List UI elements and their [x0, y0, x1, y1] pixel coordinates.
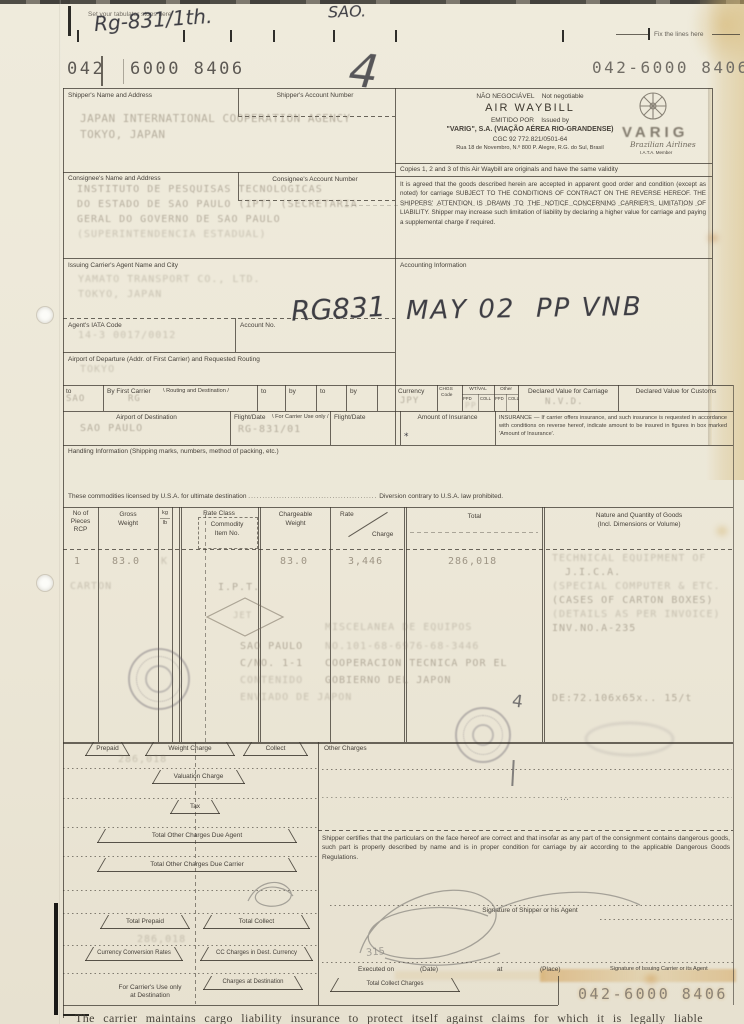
total-collect-trap: Total Collect [203, 915, 310, 929]
charges-line-7 [63, 945, 318, 946]
copies-note-topline [395, 163, 712, 164]
destination-v4 [495, 411, 496, 445]
destination-label: Airport of Destination [63, 414, 230, 422]
tab-tick [183, 30, 185, 42]
not-negotiable-line: NÃO NEGOCIÁVEL Not negotiable [420, 93, 640, 101]
consignee-label: Consignee's Name and Address [68, 175, 161, 183]
routing-v6 [377, 385, 378, 411]
consignee-line1: INSTITUTO DE PESQUISAS TECNOLOGICAS [77, 184, 323, 195]
awb-stamp-bottom-right: 042-6000 8406 [578, 985, 728, 1003]
mark-line-3b: COOPERACION TECNICA POR EL [325, 658, 508, 669]
shipper-consignee-divider [63, 172, 395, 173]
total-collect-label: Total Collect [239, 918, 274, 925]
routing-v5 [346, 385, 347, 411]
place-label: (Place) [540, 966, 561, 974]
other-charges-line-1 [322, 769, 732, 770]
agent-band-topline [63, 258, 712, 259]
carrier-use-label: \ For Carrier Use only / [272, 414, 329, 421]
dv-carriage-label: Declared Value for Carriage [520, 388, 616, 396]
routing-to2-label: to [261, 388, 266, 396]
flight-date-label: Flight/Date [234, 414, 265, 422]
handwritten-accounting: MAY 02 PP VNB [406, 292, 643, 326]
routing-v4 [316, 385, 317, 411]
awb-stamp-top-right: 042-6000 8406 [592, 58, 744, 77]
routing-v3 [285, 385, 286, 411]
iata-account-divider [235, 318, 236, 352]
insurance-note: INSURANCE — If carrier offers insurance,… [499, 414, 727, 438]
handling-topline [63, 445, 733, 446]
agent-name-line2: TOKYO, JAPAN [78, 289, 162, 300]
carrier-use-text: For Carrier Use only [275, 414, 325, 420]
th-gross-1: Gross [98, 511, 158, 519]
row-pieces: 1 [74, 556, 81, 567]
th-chargeable-1: Chargeable [261, 511, 330, 519]
stain-dot-1 [706, 232, 720, 244]
left-margin-crease [59, 0, 61, 1024]
accounting-label: Accounting Information [400, 262, 466, 270]
th-pieces-2: Pieces [63, 518, 98, 526]
destination-v2 [330, 411, 331, 445]
mark-carton: CARTON [70, 581, 112, 592]
form-right-border-lower [733, 385, 734, 1005]
due-agent-trap: Total Other Charges Due Agent [97, 829, 297, 843]
collect-label: Collect [266, 745, 286, 752]
total-prepaid-label: Total Prepaid [126, 918, 164, 925]
th-commodity-2: Item No. [198, 530, 256, 538]
consignee-line3: GERAL DO GOVERNO DE SAO PAULO [77, 214, 281, 225]
shipper-name-line1: JAPAN INTERNATIONAL COOPERATION AGENCY [80, 112, 351, 125]
charges-right-divider [318, 742, 319, 1005]
charges-bottomline [63, 1005, 558, 1006]
routing-by2-label: by [289, 388, 296, 396]
row-chargeable-weight: 83.0 [280, 556, 308, 567]
charges-line-8 [63, 973, 318, 974]
total-collect-charges-label: Total Collect Charges [366, 981, 423, 987]
routing-v1 [103, 385, 104, 411]
form-left-border [63, 88, 64, 1018]
charges-line-3 [63, 827, 318, 828]
destination-v1 [230, 411, 231, 445]
pen-stroke [511, 760, 514, 786]
wtval-coll-label: COLL [480, 396, 491, 401]
mark-line-3a: C/NO. 1-1 [240, 658, 303, 669]
currency-value: JPY [400, 396, 419, 406]
row-gross-weight: 83.0 [112, 556, 140, 567]
pen-mark-insurance: * [404, 432, 409, 442]
air-waybill-title: AIR WAYBILL [420, 102, 640, 115]
agent-label: Issuing Carrier's Agent Name and City [68, 262, 178, 270]
valuation-label: Valuation Charge [174, 773, 224, 780]
routing-v2 [257, 385, 258, 411]
due-carrier-trap: Total Other Charges Due Carrier [97, 858, 297, 872]
varig-brand-script: Brazilian Airlines [630, 140, 696, 149]
charges-line-6 [63, 913, 318, 914]
departure-row-topline [63, 352, 395, 353]
varig-company-line: "VARIG", S.A. (VIAÇÃO AÉREA RIO-GRANDENS… [410, 126, 650, 134]
top-left-mark [68, 6, 71, 36]
charges-line-1 [63, 768, 318, 769]
tab-tick [230, 30, 232, 42]
flight-date2-label: Flight/Date [334, 414, 365, 422]
prepaid-label: Prepaid [96, 745, 118, 752]
carrier-sig-label: Signature of Issuing Carrier or its Agen… [610, 966, 735, 973]
mark-line-5: ENVIADO DE JAPON [240, 692, 352, 703]
other-charges-label: Other Charges [324, 745, 367, 753]
th-pieces-1: No of [63, 510, 98, 518]
varig-address: Rua 18 de Novembro, N.º 800 P. Alegre, R… [410, 145, 650, 152]
weight-charge-value: 286,018 [118, 754, 167, 765]
goods-line-6: INV.NO.A-235 [552, 623, 636, 634]
date-label: (Date) [420, 966, 438, 974]
shipper-name-line2: TOKYO, JAPAN [80, 128, 165, 141]
pencil-note: 315 [366, 946, 386, 959]
air-waybill-scan: Set your tabulator stops here Rg-831/1th… [0, 0, 744, 1024]
charges-line-2 [63, 798, 318, 799]
handwritten-reference: Rg-831/1th. [93, 4, 213, 36]
destination-value: SAO PAULO [80, 423, 143, 434]
wtval-split [478, 394, 479, 411]
iata-row-topline [63, 318, 395, 319]
mark-line-4a: CONTENIDO [240, 675, 303, 686]
conversion-trap: Currency Conversion Rates [85, 947, 183, 961]
table-v-pieces [98, 507, 99, 742]
goods-dims: DE:72.106x65x.. 15/t [552, 693, 692, 704]
chgs-code-label: Code [441, 393, 452, 399]
other-split [506, 394, 507, 411]
th-nature-2: (Incl. Dimensions or Volume) [545, 521, 733, 529]
table-topline [63, 507, 733, 508]
certification-topline [318, 830, 733, 831]
consignee-line2: DO ESTADO DE SAO PAULO (IPT) (SECRETARIA [77, 199, 358, 210]
table-v-nature [542, 507, 545, 742]
due-agent-label: Total Other Charges Due Agent [152, 832, 242, 839]
not-negotiable-label: Not negotiable [542, 93, 584, 100]
due-carrier-label: Total Other Charges Due Carrier [150, 861, 244, 868]
tax-trap: Tax [170, 800, 220, 814]
handwritten-four: 4 [346, 43, 381, 100]
th-commodity-1: Commodity [198, 521, 256, 529]
awb-prefix: 042 [67, 59, 105, 79]
handwritten-sao: SAO. [328, 1, 367, 21]
th-kg-lb-line [160, 518, 170, 519]
center-divider [395, 88, 396, 445]
nao-negociavel-label: NÃO NEGOCIÁVEL [476, 93, 534, 100]
executed-overline [322, 962, 733, 963]
dv-customs-label: Declared Value for Customs [620, 388, 732, 396]
charges-line-4 [63, 856, 318, 857]
tax-label: Tax [190, 803, 200, 810]
mark-line-1: MISCELANEA DE EQUIPOS [325, 622, 472, 633]
total-header-dash [410, 532, 538, 533]
total-prepaid-trap: Total Prepaid [100, 915, 190, 929]
mark-line-4b: GOBIERNO DEL JAPON [325, 675, 451, 686]
varig-cgc: CGC 92 772.821/0501-64 [420, 136, 640, 144]
collect-trap: Collect [243, 742, 308, 756]
pencil-scribble-small [243, 876, 303, 912]
wtval-value: PP [465, 401, 477, 410]
iata-member-label: I.A.T.A. Member [640, 150, 672, 155]
th-rate: Rate [340, 511, 354, 519]
routing-to3-label: to [320, 388, 325, 396]
other-label: Other [494, 387, 518, 393]
th-lb: lb [158, 520, 172, 527]
handwritten-mark: 4 [511, 691, 525, 712]
flight-date-value: RG-831/01 [238, 424, 301, 435]
commodities-dots: ........................................… [248, 493, 377, 500]
routing-to-value: SAO [66, 394, 85, 404]
dv-carriage-value: N.V.D. [545, 397, 584, 407]
charges-dest-label: Charges at Destination [222, 979, 283, 985]
goods-line-5: (DETAILS AS PER INVOICE) [552, 609, 721, 620]
consignee-line4: (SUPERINTENDENCIA ESTADUAL) [77, 229, 267, 240]
other-ppd-label: PPD [495, 396, 504, 401]
goods-line-1: TECHNICAL EQUIPMENT OF [552, 553, 706, 564]
consignee-account-label: Consignee's Account Number [240, 176, 390, 184]
weight-charge-label: Weight Charge [168, 745, 211, 752]
commodities-prefix: These commodities licensed by U.S.A. for… [68, 493, 246, 500]
executed-on-label: Executed on [358, 966, 394, 974]
th-gross-2: Weight [98, 520, 158, 528]
routing-by3-label: by [350, 388, 357, 396]
commodities-note: These commodities licensed by U.S.A. for… [68, 493, 708, 501]
goods-line-3: (SPECIAL COMPUTER & ETC. [552, 581, 721, 592]
departure-value: TOKYO [80, 364, 115, 375]
routing-destination-label: \ Routing and Destination / [163, 388, 229, 395]
varig-compass-icon [638, 91, 668, 123]
th-chargeable-2: Weight [261, 520, 330, 528]
routing-destination-text: Routing and Destination [166, 388, 226, 394]
punch-hole-bottom [37, 575, 53, 591]
handwritten-rg831: RG831 [290, 290, 386, 328]
other-charges-line-2 [322, 797, 732, 798]
fix-lines-rule-left [616, 34, 648, 35]
currency-v5 [618, 385, 619, 411]
goods-line-4: (CASES OF CARTON BOXES) [552, 595, 713, 606]
currency-label: Currency [398, 388, 424, 396]
issued-by-line: EMITIDO POR Issued by [420, 117, 640, 125]
total-collect-charges-trap: Total Collect Charges [330, 978, 460, 992]
departure-label: Airport of Departure (Addr. of First Car… [68, 356, 260, 364]
mark-line-2b: NO.101-68-6976-68-3446 [325, 641, 479, 652]
mark-line-2a: SAO PAULO [240, 641, 303, 652]
row-rate: 3,446 [348, 556, 383, 567]
chgs-label: CHGS [439, 387, 453, 393]
th-pieces-3: RCP [63, 526, 98, 534]
th-kg: kg [158, 510, 172, 517]
total-prepaid-value: 286,018 [137, 934, 186, 945]
copies-note-bottomline [395, 176, 712, 177]
fix-lines-tick [648, 28, 650, 40]
diamond-stamp-text: JET [233, 611, 252, 621]
shipper-account-label: Shipper's Account Number [240, 92, 390, 100]
th-nature-1: Nature and Quantity of Goods [545, 512, 733, 520]
tab-tick [77, 30, 79, 42]
row-kg-code: K [161, 556, 168, 567]
tab-tick [333, 30, 335, 42]
commodities-suffix: Diversion contrary to U.S.A. law prohibi… [379, 493, 503, 500]
copies-note: Copies 1, 2 and 3 of this Air Waybill ar… [400, 166, 710, 174]
tab-tick [273, 30, 275, 42]
cc-dest-trap: CC Charges in Dest. Currency [200, 947, 313, 961]
footer-text: The carrier maintains cargo liability in… [75, 1011, 735, 1024]
currency-v1 [437, 385, 438, 411]
table-header-bottomline [63, 549, 733, 550]
insurance-amount-label: Amount of Insurance [400, 414, 495, 422]
cc-dest-label: CC Charges in Dest. Currency [216, 950, 297, 956]
form-right-border-upper [712, 88, 713, 385]
carrier-use-dest-label-2: at Destination [85, 992, 215, 1000]
at-label: at [497, 966, 502, 974]
awb-separator [101, 56, 103, 86]
routing-row-topline [63, 385, 733, 386]
conditions-paragraph: It is agreed that the goods described he… [400, 180, 706, 227]
tab-tick [395, 30, 397, 42]
fix-lines-note: Fix the lines here [654, 31, 704, 39]
agent-iata-label: Agent's IATA Code [68, 322, 122, 330]
fix-lines-rule-right [712, 34, 740, 35]
punch-hole-top [37, 307, 53, 323]
round-stamp-left [128, 648, 190, 710]
tab-tick [562, 30, 564, 42]
awb-serial: 6000 8406 [130, 59, 245, 79]
awb-separator-2 [123, 59, 124, 84]
goods-line-2: J.I.C.A. [565, 567, 621, 578]
left-black-bar [54, 903, 58, 1015]
round-stamp-center [455, 707, 511, 763]
carrier-use-dest-label-1: For Carrier's Use only [85, 984, 215, 992]
currency-v4 [518, 385, 519, 411]
total-collect-box-right [558, 976, 559, 1005]
th-charge: Charge [372, 531, 393, 539]
pencil-mark-pct: … [560, 793, 569, 803]
form-top-border [63, 88, 712, 89]
account-no-label: Account No. [240, 322, 275, 330]
scan-top-edge [0, 0, 744, 4]
mark-ipt: I.P.T. [218, 582, 260, 593]
wtval-label: WT/VAL [462, 387, 494, 393]
first-carrier-value: RG [128, 394, 141, 404]
row-total: 286,018 [448, 556, 497, 567]
varig-brand: VARIG [622, 124, 688, 141]
table-v-rateclass [179, 507, 182, 742]
emitido-por-label: EMITIDO POR [491, 117, 534, 124]
handling-label: Handling Information (Shipping marks, nu… [68, 448, 279, 456]
issued-by-label: Issued by [541, 117, 569, 124]
shipper-label: Shipper's Name and Address [68, 92, 152, 100]
destination-row-topline [63, 411, 733, 412]
valuation-trap: Valuation Charge [152, 770, 245, 784]
charges-dest-trap: Charges at Destination [203, 976, 303, 990]
th-total: Total [407, 513, 542, 521]
conversion-label: Currency Conversion Rates [97, 950, 171, 956]
stamp-smudge [585, 722, 674, 756]
agent-name-line1: YAMATO TRANSPORT CO., LTD. [78, 274, 261, 285]
agent-iata-code: 14-3 0017/0012 [78, 330, 176, 341]
